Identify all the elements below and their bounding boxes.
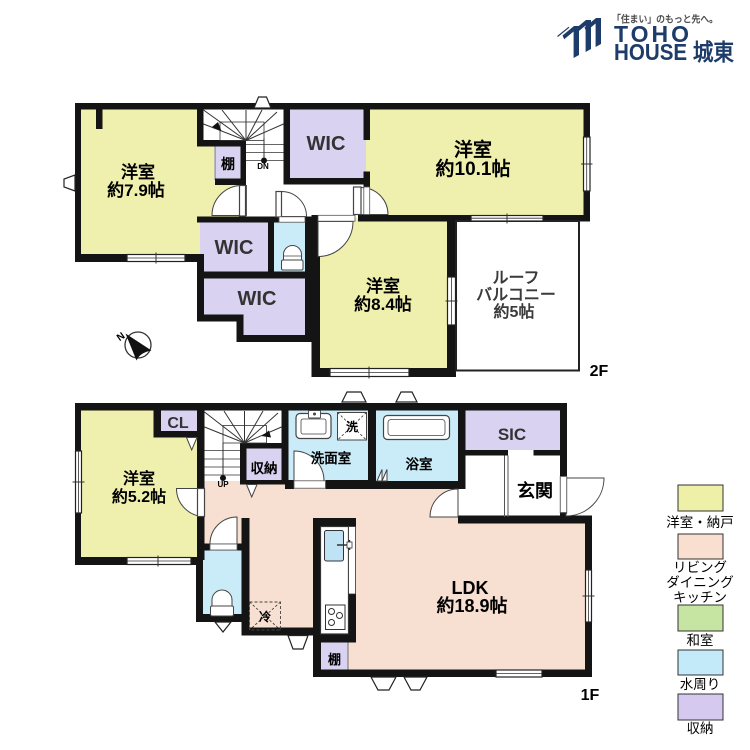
svg-text:DN: DN [257, 162, 269, 171]
svg-text:約10.1帖: 約10.1帖 [436, 157, 511, 180]
svg-text:水周り: 水周り [680, 677, 721, 692]
svg-text:棚: 棚 [221, 156, 235, 172]
svg-text:UP: UP [217, 480, 229, 489]
svg-text:HOUSE 城東: HOUSE 城東 [614, 39, 734, 65]
svg-text:WIC: WIC [215, 237, 254, 259]
svg-text:玄関: 玄関 [517, 480, 553, 501]
svg-text:洋室: 洋室 [121, 162, 155, 182]
svg-text:収納: 収納 [251, 460, 278, 476]
svg-text:洋室: 洋室 [366, 276, 400, 296]
svg-text:2F: 2F [590, 363, 609, 380]
svg-text:CL: CL [167, 415, 189, 432]
svg-text:約8.4帖: 約8.4帖 [354, 294, 412, 314]
svg-text:リビング: リビング [673, 560, 727, 575]
svg-text:収納: 収納 [687, 721, 714, 736]
svg-text:洋室・納戸: 洋室・納戸 [666, 514, 734, 530]
svg-text:WIC: WIC [238, 288, 277, 310]
svg-text:ルーフ: ルーフ [492, 270, 539, 287]
svg-text:洗: 洗 [346, 419, 358, 434]
svg-text:約5帖: 約5帖 [494, 302, 535, 321]
svg-text:和室: 和室 [687, 632, 714, 648]
svg-text:WIC: WIC [307, 133, 346, 155]
svg-text:ダイニング: ダイニング [666, 575, 734, 590]
svg-text:LDK: LDK [452, 578, 489, 598]
svg-text:バルコニー: バルコニー [476, 286, 556, 304]
svg-text:約5.2帖: 約5.2帖 [112, 487, 166, 506]
svg-text:洋室: 洋室 [123, 469, 155, 488]
svg-text:棚: 棚 [328, 652, 341, 667]
svg-text:洗面室: 洗面室 [311, 450, 352, 466]
svg-text:浴室: 浴室 [406, 456, 433, 472]
svg-text:キッチン: キッチン [673, 590, 727, 605]
svg-text:約18.9帖: 約18.9帖 [436, 595, 507, 616]
svg-text:約7.9帖: 約7.9帖 [107, 180, 165, 200]
svg-text:SIC: SIC [498, 425, 526, 444]
svg-text:冷: 冷 [259, 609, 271, 624]
svg-text:1F: 1F [581, 687, 600, 704]
svg-text:洋室: 洋室 [454, 138, 492, 161]
